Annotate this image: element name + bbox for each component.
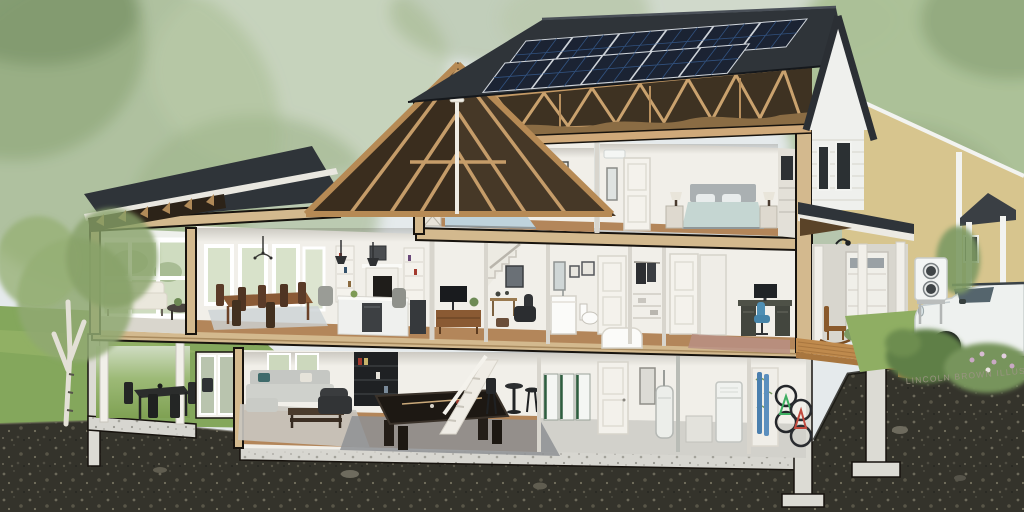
electrical-panel [640, 368, 655, 404]
skis [764, 374, 769, 436]
side-window [818, 146, 829, 190]
office-door [670, 254, 698, 334]
rock [341, 470, 359, 478]
skis [757, 372, 762, 434]
duct-unit [686, 416, 712, 442]
plant [351, 291, 358, 298]
basement-window [296, 354, 318, 372]
mini-split-head [604, 150, 625, 158]
office-door [700, 255, 726, 335]
porch-post [814, 246, 823, 344]
utility-door [598, 362, 628, 434]
hall-art [506, 266, 523, 287]
right-footing [782, 494, 824, 507]
bath-art [582, 262, 594, 275]
steel-column [676, 356, 680, 452]
basement-window [268, 354, 290, 372]
plant [470, 298, 479, 307]
rock [954, 475, 966, 481]
tv [440, 286, 467, 302]
plant [174, 298, 182, 306]
ottoman [496, 318, 509, 327]
basement [196, 348, 811, 458]
living-chair [318, 286, 333, 306]
side-window [836, 142, 851, 190]
closet-rod [634, 262, 660, 263]
tall-mirror [607, 168, 617, 200]
dark-cabinet [410, 300, 426, 334]
rock [153, 467, 167, 473]
rock [892, 426, 908, 434]
suv-mirror [959, 299, 966, 304]
porch-pier-footing [852, 462, 900, 477]
basement-armchair [318, 388, 352, 414]
rock [533, 483, 547, 490]
bath-mirror [554, 262, 565, 290]
hanging-clothes [636, 263, 646, 284]
bedroomR-ceiling-shade [600, 144, 778, 154]
dining-room [206, 236, 328, 330]
right-cut-wall [796, 124, 812, 352]
built-in-bookshelf-right [404, 248, 424, 304]
basement-french-doors [196, 352, 238, 418]
patio [96, 340, 196, 424]
bathtub [602, 328, 642, 348]
heat-pump-water-heater [716, 382, 742, 442]
battery-bank [544, 374, 590, 420]
bed [682, 184, 764, 228]
bedroom-door [624, 158, 650, 230]
vanity [551, 290, 576, 334]
sunroom-cut-wall [186, 228, 196, 334]
living-armchair [392, 288, 406, 308]
grill-silhouette [202, 378, 213, 392]
bath-art [570, 266, 579, 277]
upper-closet [778, 148, 796, 238]
cutaway-house-illustration: LINCOLN BROWN ILLUSTRATION [0, 0, 1024, 512]
bath-door [598, 256, 626, 334]
hanging-clothes [647, 263, 656, 282]
hanging-clothes [781, 156, 793, 180]
